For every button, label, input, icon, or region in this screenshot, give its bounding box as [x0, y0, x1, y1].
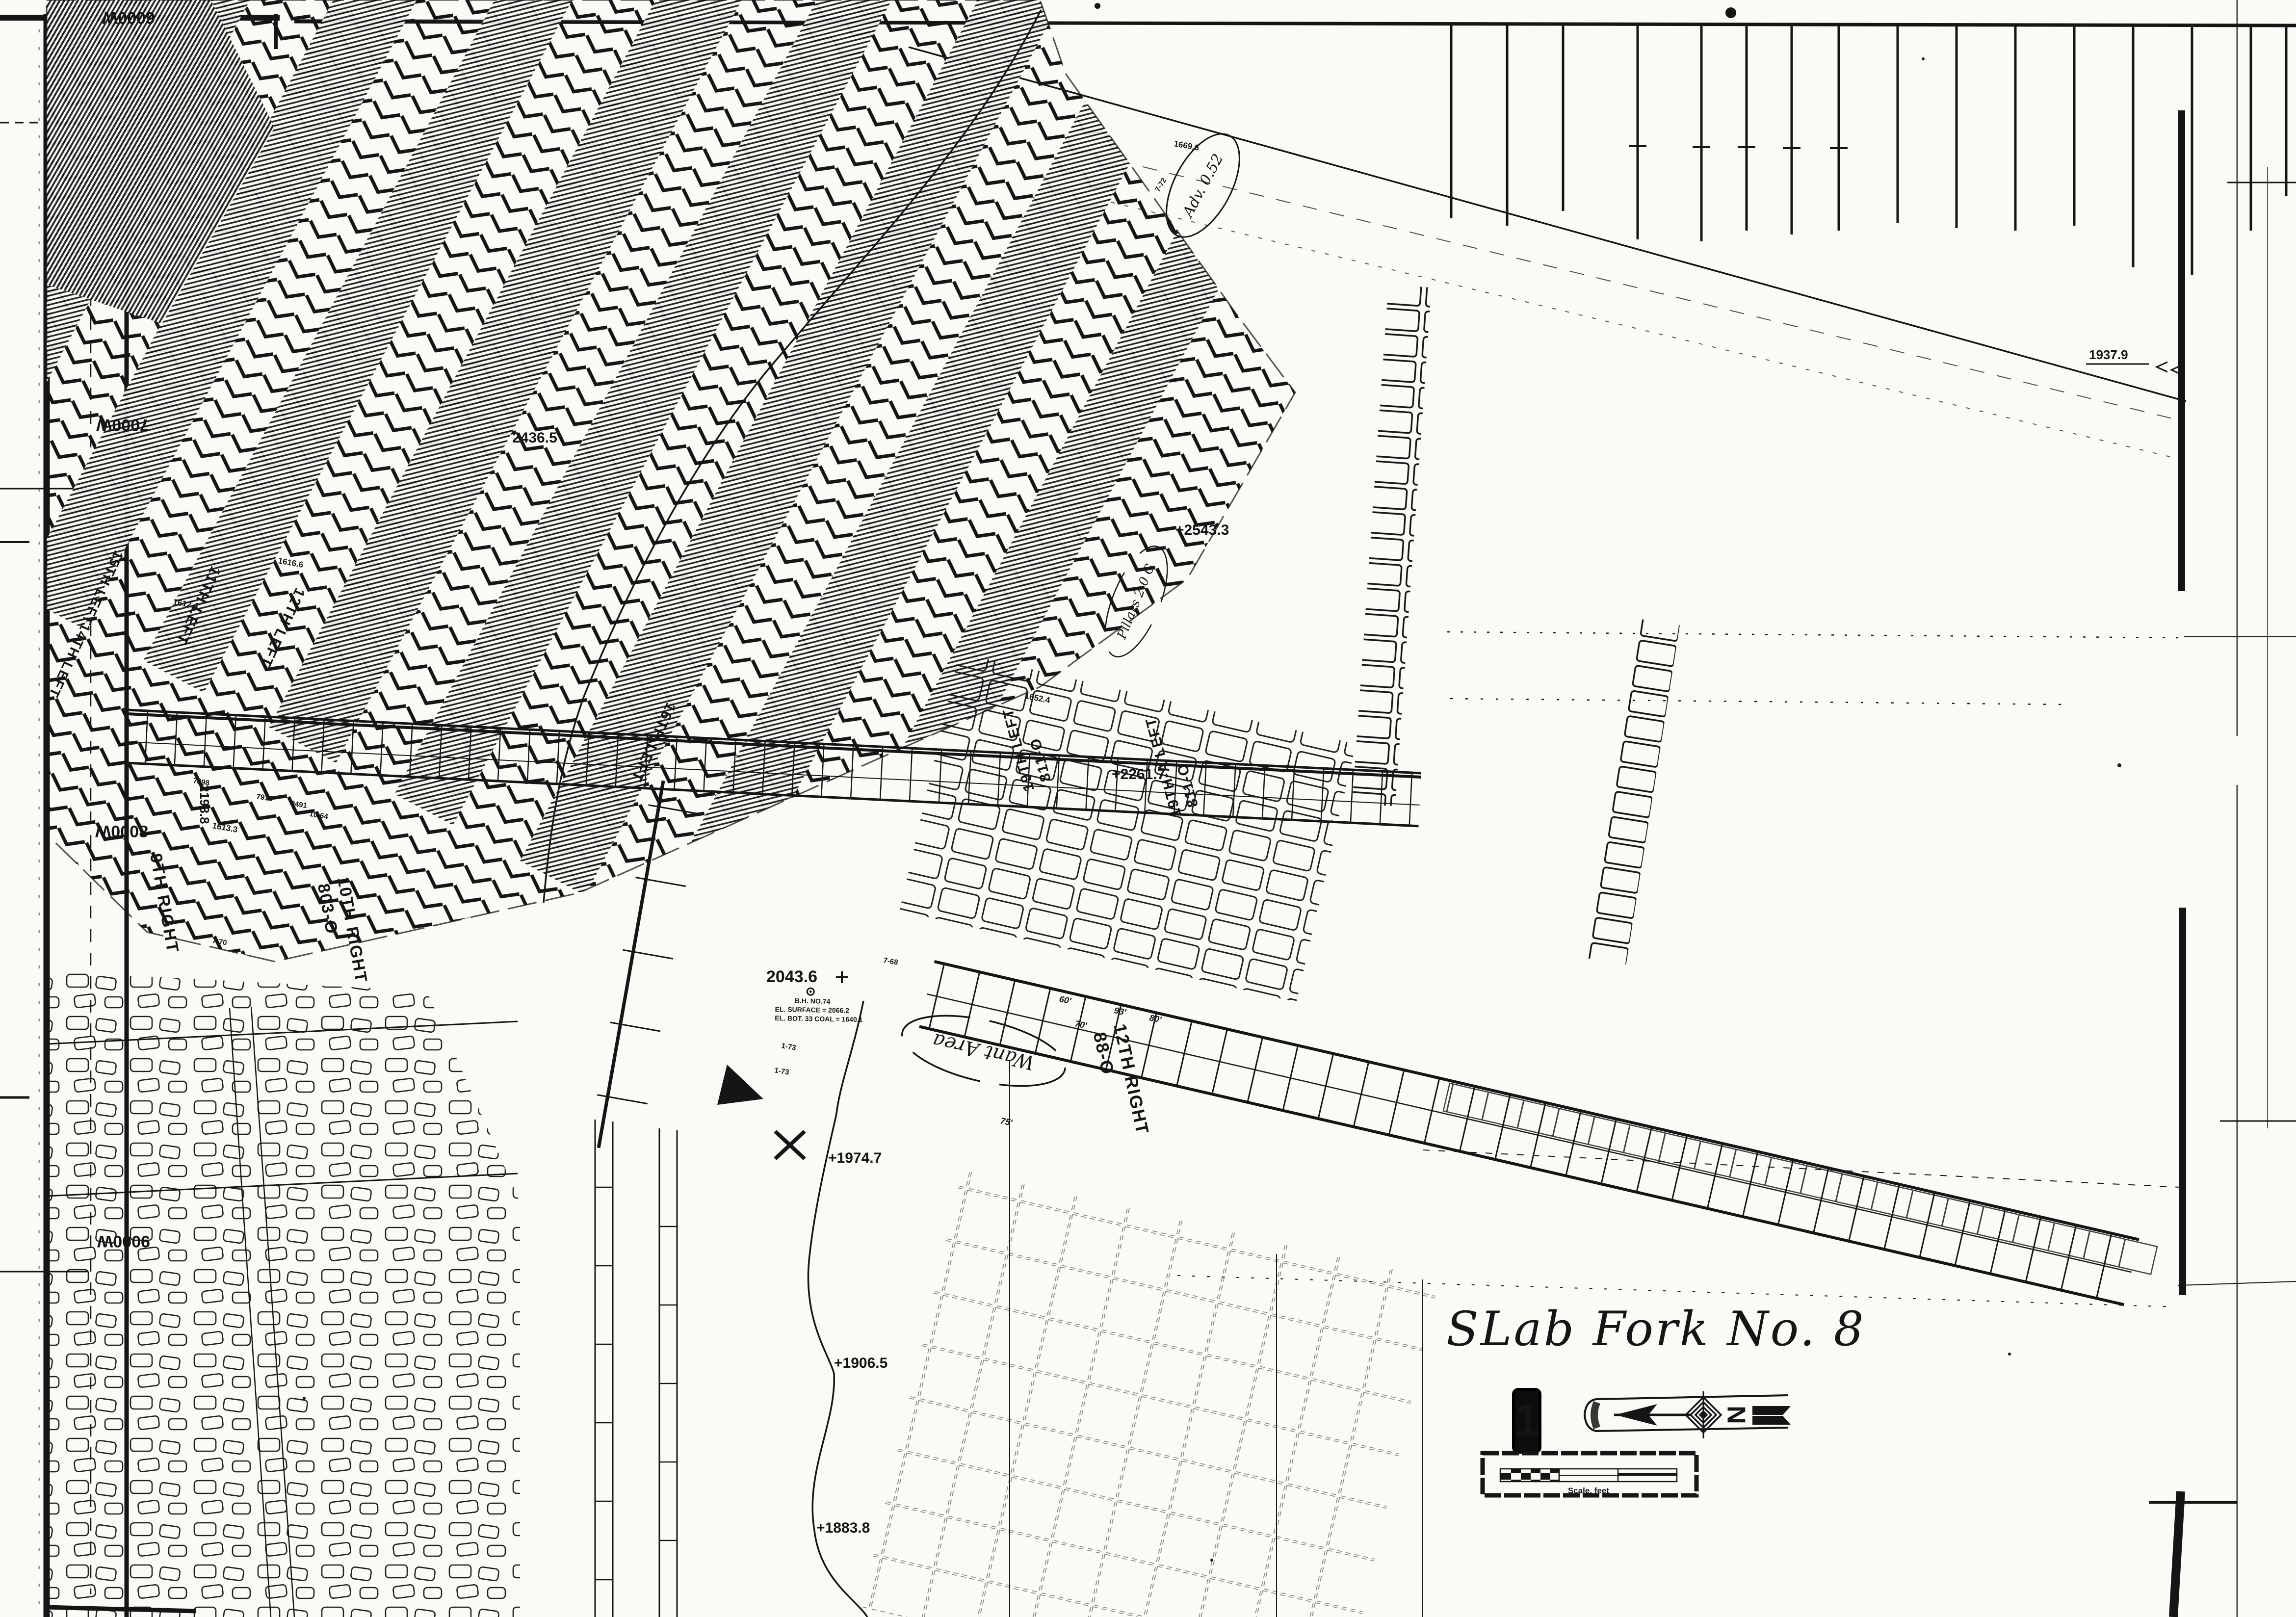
right-border: [2149, 0, 2296, 1617]
borehole-name: B.H. NO.74: [795, 997, 831, 1005]
annotation-adv-text: Adv. 0.52: [1179, 151, 1227, 221]
grid-label-6000w: 6000W: [102, 8, 155, 27]
spot-elevation-2436: 2436.5: [512, 430, 557, 446]
survey-flag-triangle: [717, 1065, 763, 1105]
spot-elevation-2261: +2261.7: [1112, 766, 1165, 782]
borehole-bottom-elevation: EL. BOT. 33 COAL = 1640.1: [775, 1014, 863, 1023]
date-1-73-b: 1-73: [774, 1066, 789, 1076]
north-arrow-blotch: [1591, 1401, 1600, 1429]
map-title-handwritten: SLab Fork No. 8: [1446, 1302, 1866, 1356]
dashed-survey-rows: [1177, 632, 2180, 1307]
spot-elevation-2543: +2543.3: [1175, 522, 1229, 538]
station-1937: 1937.9: [2086, 347, 2182, 375]
date-1-73-a: 1-73: [781, 1042, 796, 1052]
sheet-number: 1: [1514, 1395, 1539, 1445]
spot-elevation-1906: +1906.5: [834, 1355, 887, 1371]
scale-bar-checker: [1500, 1469, 1559, 1482]
north-arrow-feather: [1752, 1406, 1791, 1425]
scanned-mine-map-sheet: 6000W 7000W 8000W 9000W 11TH LEFT 12TH L…: [0, 0, 2296, 1617]
borehole-symbol-dot: [809, 991, 812, 993]
north-arrow: N: [1585, 1391, 1791, 1438]
spot-elevation-2043: 2043.6: [766, 967, 817, 986]
spot-elevation-2198: 2198.8: [197, 785, 212, 824]
bottom-left-workings: [47, 971, 520, 1617]
dim-75: 75': [999, 1116, 1013, 1127]
ink-dot: [1725, 7, 1736, 18]
grid-label-7000w: 7000W: [96, 416, 149, 434]
date-7-72: 7-72: [1153, 177, 1168, 193]
pillar-field-19th-left: [900, 652, 1356, 1002]
borehole-surface-elevation: EL. SURFACE = 2066.2: [775, 1005, 849, 1015]
spot-elevation-1937: 1937.9: [2089, 347, 2128, 362]
north-letter: N: [1722, 1406, 1750, 1424]
mine-map-canvas: 6000W 7000W 8000W 9000W 11TH LEFT 12TH L…: [0, 0, 2296, 1617]
top-right-grid-teeth: [1451, 24, 2286, 275]
grid-label-8000w: 8000W: [95, 822, 148, 840]
pillar-column-a: [1352, 285, 1432, 807]
projection-grid-bottom: [860, 1168, 1439, 1617]
sheet-number-stamp: 1: [1513, 1389, 1540, 1452]
spot-elevation-1669: 1669.6: [1173, 139, 1200, 153]
spot-elevation-1883: +1883.8: [816, 1520, 870, 1536]
plus-mark-2043: [836, 971, 848, 983]
scale-caption: Scale, feet: [1568, 1486, 1609, 1495]
grid-label-9000w: 9000W: [97, 1232, 150, 1251]
pillar-column-b: [1587, 619, 1680, 965]
spot-elevation-1974: +1974.7: [828, 1150, 882, 1166]
borehole-note: B.H. NO.74 EL. SURFACE = 2066.2 EL. BOT.…: [775, 988, 863, 1023]
date-7-68: 7-68: [883, 956, 898, 966]
scale-bar: Scale, feet: [1483, 1453, 1696, 1495]
